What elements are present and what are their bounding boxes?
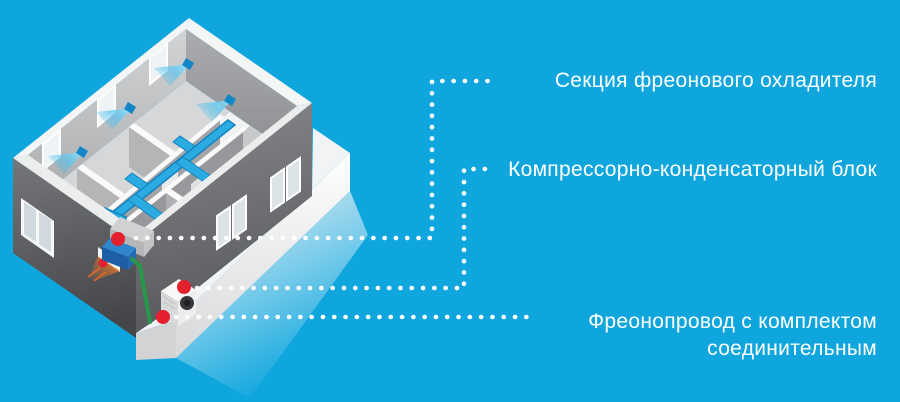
marker-dot-condenser-unit	[177, 280, 191, 294]
infographic-canvas: Секция фреонового охладителя Компрессорн…	[0, 0, 900, 402]
label-cooler-section: Секция фреонового охладителя	[555, 67, 877, 94]
label-pipeline: Фреонопровод с комплектом соединительным	[532, 308, 877, 362]
marker-dot-cooler-section	[111, 232, 125, 246]
marker-dot-pipeline	[156, 310, 170, 324]
label-condenser-unit: Компрессорно-конденсаторный блок	[508, 156, 877, 183]
